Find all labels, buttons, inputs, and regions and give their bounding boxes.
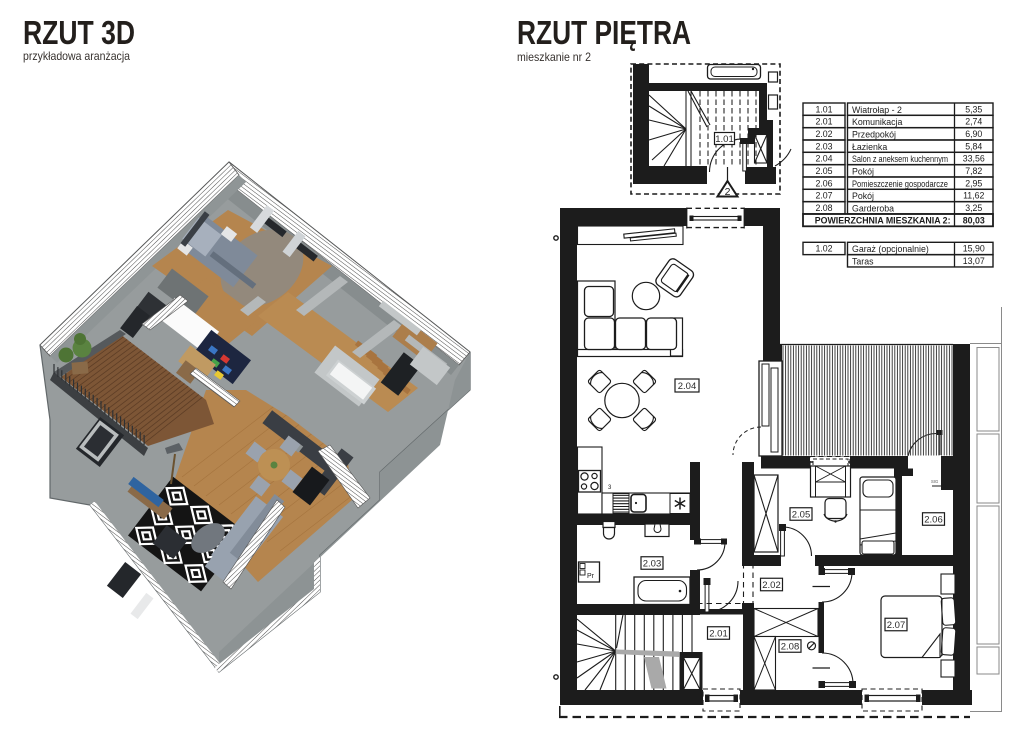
svg-text:2.01: 2.01 — [709, 629, 728, 640]
svg-text:2,95: 2,95 — [965, 178, 982, 188]
svg-text:2.05: 2.05 — [792, 510, 811, 521]
svg-text:2.02: 2.02 — [762, 580, 781, 591]
svg-text:5,84: 5,84 — [965, 141, 982, 151]
svg-text:2.06: 2.06 — [815, 178, 832, 188]
svg-text:RZUT PIĘTRA: RZUT PIĘTRA — [517, 14, 691, 51]
svg-text:2.03: 2.03 — [643, 559, 662, 570]
svg-text:Pr: Pr — [587, 573, 595, 580]
svg-text:2.07: 2.07 — [887, 620, 906, 631]
svg-text:przykładowa aranżacja: przykładowa aranżacja — [23, 49, 130, 63]
svg-text:3,25: 3,25 — [965, 203, 982, 213]
svg-text:Pomieszczenie gospodarcze: Pomieszczenie gospodarcze — [852, 179, 948, 189]
svg-text:Pokój: Pokój — [852, 166, 874, 176]
svg-text:Salon z aneksem kuchennym: Salon z aneksem kuchennym — [852, 154, 948, 164]
svg-text:2.01: 2.01 — [815, 117, 832, 127]
svg-text:2.08: 2.08 — [815, 203, 832, 213]
svg-text:2.06: 2.06 — [924, 515, 943, 526]
svg-text:Wiatrołap - 2: Wiatrołap - 2 — [852, 105, 902, 115]
svg-text:13,07: 13,07 — [963, 256, 985, 266]
svg-text:Łazienka: Łazienka — [852, 142, 887, 152]
svg-text:mieszkanie nr 2: mieszkanie nr 2 — [517, 50, 591, 64]
svg-text:SIG: SIG — [931, 479, 938, 484]
svg-text:2,74: 2,74 — [965, 117, 982, 127]
svg-text:33,56: 33,56 — [963, 154, 985, 164]
svg-text:1.02: 1.02 — [815, 244, 832, 254]
svg-text:7,82: 7,82 — [965, 166, 982, 176]
svg-text:RZUT 3D: RZUT 3D — [23, 14, 135, 51]
svg-text:1.01: 1.01 — [815, 104, 832, 114]
svg-text:Przedpokój: Przedpokój — [852, 129, 896, 139]
svg-text:2: 2 — [725, 186, 731, 198]
svg-text:Komunikacja: Komunikacja — [852, 117, 902, 127]
svg-text:2.05: 2.05 — [815, 166, 832, 176]
svg-text:11,62: 11,62 — [963, 191, 984, 201]
svg-text:2.03: 2.03 — [815, 141, 832, 151]
svg-text:80,03: 80,03 — [963, 215, 985, 225]
svg-text:Pokój: Pokój — [852, 191, 874, 201]
svg-text:POWIERZCHNIA MIESZKANIA 2:: POWIERZCHNIA MIESZKANIA 2: — [815, 215, 951, 225]
svg-text:2.04: 2.04 — [678, 381, 697, 392]
svg-text:6,90: 6,90 — [965, 129, 982, 139]
svg-text:Garaż (opcjonalnie): Garaż (opcjonalnie) — [852, 244, 929, 254]
svg-text:2.04: 2.04 — [815, 154, 832, 164]
svg-text:Garderoba: Garderoba — [852, 203, 894, 213]
svg-text:2.07: 2.07 — [815, 191, 832, 201]
svg-text:1.01: 1.01 — [715, 134, 734, 145]
svg-text:15,90: 15,90 — [963, 244, 985, 254]
svg-text:2.08: 2.08 — [781, 642, 800, 653]
svg-text:5,35: 5,35 — [965, 104, 982, 114]
svg-text:2.02: 2.02 — [815, 129, 832, 139]
svg-text:Taras: Taras — [852, 256, 874, 266]
